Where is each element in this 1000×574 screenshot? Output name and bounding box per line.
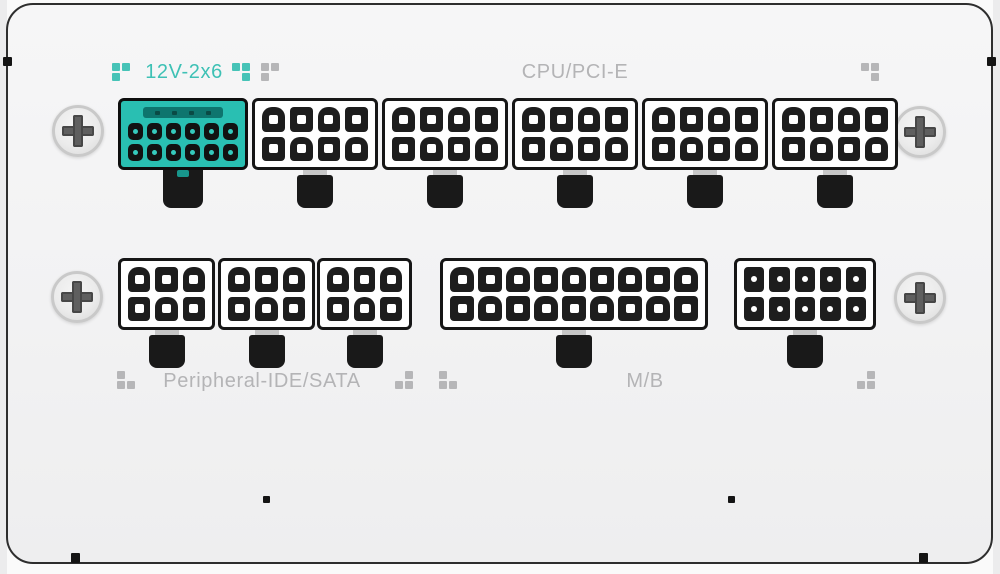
latch-slot	[163, 168, 203, 208]
pin-socket	[522, 107, 545, 132]
socket-12v-2x6	[118, 98, 248, 170]
socket-cpu-pcie-2	[382, 98, 508, 170]
pin-socket	[128, 123, 143, 140]
pin-socket	[795, 267, 815, 292]
pin-socket	[147, 123, 162, 140]
pin-socket	[128, 297, 150, 322]
pin-socket	[185, 144, 200, 161]
pin-socket	[605, 107, 628, 132]
pin-socket	[223, 123, 238, 140]
pin-socket	[810, 107, 833, 132]
pin-socket	[380, 267, 402, 292]
pin-socket	[782, 137, 805, 162]
pin-socket	[769, 297, 789, 322]
pin-socket	[475, 107, 498, 132]
pin-socket	[708, 107, 731, 132]
pin-socket	[420, 107, 443, 132]
latch-notch	[177, 170, 189, 177]
pin-socket	[183, 267, 205, 292]
pin-socket	[255, 267, 277, 292]
pin-socket	[522, 137, 545, 162]
pin-socket	[605, 137, 628, 162]
socket-peripheral-3	[317, 258, 412, 330]
socket-cpu-pcie-1	[252, 98, 378, 170]
latch-slot	[817, 168, 853, 208]
pin-socket	[769, 267, 789, 292]
pin-socket	[327, 297, 349, 322]
pin-socket	[380, 297, 402, 322]
pin-socket	[646, 267, 670, 292]
pin-socket	[674, 296, 698, 321]
socket-mb-10pin	[734, 258, 876, 330]
pin-socket	[204, 123, 219, 140]
pin-socket	[550, 137, 573, 162]
socket-peripheral-2	[218, 258, 315, 330]
pin-socket	[865, 107, 888, 132]
pin-socket	[283, 267, 305, 292]
latch-slot	[556, 328, 592, 368]
pin-socket	[290, 137, 313, 162]
pin-socket	[318, 137, 341, 162]
latch-slot	[249, 328, 285, 368]
pin-socket	[618, 267, 642, 292]
pin-socket	[392, 107, 415, 132]
pin-socket	[147, 144, 162, 161]
pin-socket	[204, 144, 219, 161]
latch-slot	[787, 328, 823, 368]
pin-socket	[590, 267, 614, 292]
pin-socket	[744, 267, 764, 292]
pin-socket	[478, 267, 502, 292]
socket-cpu-pcie-5	[772, 98, 898, 170]
pin-socket	[735, 107, 758, 132]
pin-socket	[166, 144, 181, 161]
pin-socket	[345, 137, 368, 162]
pin-socket	[155, 267, 177, 292]
pin-socket	[228, 267, 250, 292]
pin-socket	[345, 107, 368, 132]
pin-socket	[618, 296, 642, 321]
pin-socket	[795, 297, 815, 322]
pin-socket	[865, 137, 888, 162]
pin-socket	[327, 267, 349, 292]
pin-socket	[810, 137, 833, 162]
pin-socket	[228, 297, 250, 322]
pin-socket	[223, 144, 238, 161]
socket-peripheral-1	[118, 258, 215, 330]
pin-socket	[846, 267, 866, 292]
pin-socket	[578, 137, 601, 162]
pin-socket	[550, 107, 573, 132]
latch-slot	[687, 168, 723, 208]
latch-slot	[427, 168, 463, 208]
pin-socket	[506, 296, 530, 321]
pin-socket	[262, 107, 285, 132]
pin-socket	[392, 137, 415, 162]
pin-socket	[255, 297, 277, 322]
pin-socket	[590, 296, 614, 321]
sense-pins-slot	[143, 107, 223, 118]
pin-socket	[680, 137, 703, 162]
pin-socket	[166, 123, 181, 140]
pin-socket	[318, 107, 341, 132]
pin-socket	[820, 267, 840, 292]
pin-socket	[450, 296, 474, 321]
pin-socket	[646, 296, 670, 321]
pin-socket	[478, 296, 502, 321]
psu-front-panel: 12V-2x6 CPU/PCI-E Peripheral-IDE/SATA M/…	[0, 0, 1000, 574]
socket-cpu-pcie-3	[512, 98, 638, 170]
pin-socket	[820, 297, 840, 322]
pin-socket	[290, 107, 313, 132]
pin-socket	[578, 107, 601, 132]
pin-socket	[128, 267, 150, 292]
pin-socket	[680, 107, 703, 132]
pin-socket	[506, 267, 530, 292]
pin-socket	[838, 137, 861, 162]
pin-socket	[448, 137, 471, 162]
pin-socket	[475, 137, 498, 162]
pin-socket	[562, 296, 586, 321]
connector-layer	[0, 0, 1000, 574]
pin-socket	[534, 296, 558, 321]
pin-socket	[450, 267, 474, 292]
latch-slot	[347, 328, 383, 368]
pin-socket	[354, 297, 376, 322]
pin-socket	[674, 267, 698, 292]
pin-socket	[183, 297, 205, 322]
pin-socket	[652, 107, 675, 132]
pin-socket	[846, 297, 866, 322]
pin-socket	[448, 107, 471, 132]
pin-socket	[354, 267, 376, 292]
socket-mb-18pin	[440, 258, 708, 330]
latch-slot	[149, 328, 185, 368]
pin-socket	[420, 137, 443, 162]
pin-socket	[534, 267, 558, 292]
pin-socket	[283, 297, 305, 322]
pin-socket	[735, 137, 758, 162]
pin-socket	[562, 267, 586, 292]
latch-slot	[557, 168, 593, 208]
pin-socket	[155, 297, 177, 322]
pin-socket	[652, 137, 675, 162]
pin-socket	[708, 137, 731, 162]
socket-cpu-pcie-4	[642, 98, 768, 170]
pin-socket	[744, 297, 764, 322]
pin-socket	[185, 123, 200, 140]
latch-slot	[297, 168, 333, 208]
pin-socket	[782, 107, 805, 132]
pin-socket	[262, 137, 285, 162]
pin-socket	[128, 144, 143, 161]
pin-socket	[838, 107, 861, 132]
